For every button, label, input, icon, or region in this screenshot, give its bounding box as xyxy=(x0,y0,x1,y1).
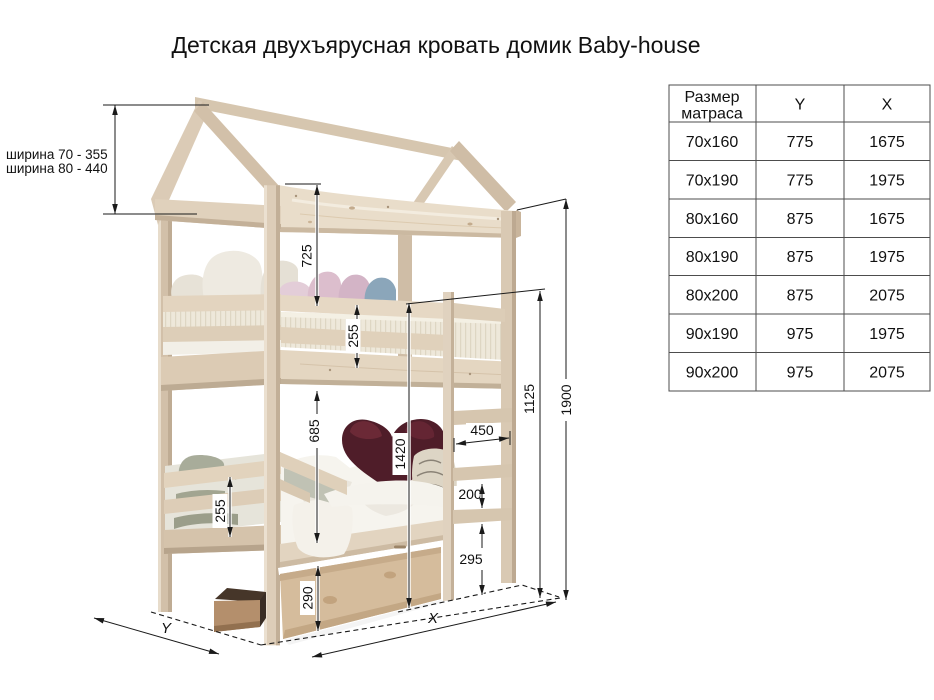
svg-text:875: 875 xyxy=(787,211,814,228)
svg-text:255: 255 xyxy=(345,324,361,348)
svg-text:1675: 1675 xyxy=(869,134,905,151)
svg-text:295: 295 xyxy=(459,551,483,567)
svg-text:975: 975 xyxy=(787,326,814,343)
svg-text:ширина 80 - 440: ширина 80 - 440 xyxy=(6,161,108,176)
svg-text:685: 685 xyxy=(306,419,322,443)
svg-text:80x200: 80x200 xyxy=(686,288,739,305)
svg-text:1975: 1975 xyxy=(869,172,905,189)
svg-text:775: 775 xyxy=(787,172,814,189)
svg-text:200: 200 xyxy=(458,486,482,502)
svg-text:ширина 70 - 355: ширина 70 - 355 xyxy=(6,147,108,162)
svg-text:80x190: 80x190 xyxy=(686,249,739,266)
svg-text:450: 450 xyxy=(470,422,494,438)
svg-text:255: 255 xyxy=(212,499,228,523)
svg-text:1420: 1420 xyxy=(392,438,408,469)
svg-text:1900: 1900 xyxy=(558,384,574,415)
svg-text:875: 875 xyxy=(787,249,814,266)
svg-text:1125: 1125 xyxy=(521,384,537,414)
svg-text:1975: 1975 xyxy=(869,326,905,343)
svg-text:Y: Y xyxy=(161,620,172,637)
svg-text:70x160: 70x160 xyxy=(686,134,739,151)
svg-text:1975: 1975 xyxy=(869,249,905,266)
svg-text:90x190: 90x190 xyxy=(686,326,739,343)
svg-text:Детская двухъярусная кровать д: Детская двухъярусная кровать домик Baby-… xyxy=(171,32,700,58)
svg-text:875: 875 xyxy=(787,288,814,305)
svg-text:X: X xyxy=(427,610,439,627)
svg-text:80x160: 80x160 xyxy=(686,211,739,228)
svg-text:90x200: 90x200 xyxy=(686,365,739,382)
svg-text:матраса: матраса xyxy=(681,106,743,123)
svg-text:975: 975 xyxy=(787,365,814,382)
svg-text:1675: 1675 xyxy=(869,211,905,228)
svg-text:290: 290 xyxy=(300,586,316,610)
svg-text:2075: 2075 xyxy=(869,288,905,305)
svg-text:775: 775 xyxy=(787,134,814,151)
svg-text:70x190: 70x190 xyxy=(686,172,739,189)
svg-text:2075: 2075 xyxy=(869,365,905,382)
svg-text:Y: Y xyxy=(795,97,806,114)
svg-text:Размер: Размер xyxy=(685,89,740,106)
svg-text:X: X xyxy=(882,97,893,114)
svg-text:725: 725 xyxy=(299,244,315,268)
